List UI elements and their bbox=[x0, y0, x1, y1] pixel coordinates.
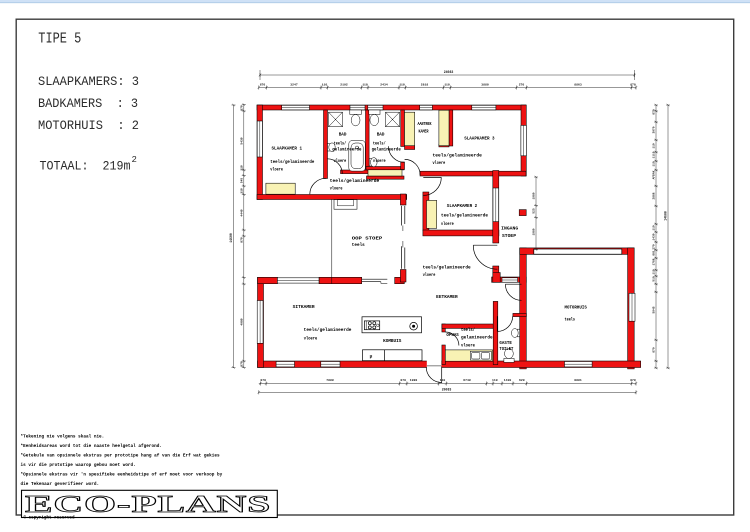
svg-text:SLAAPKAMERS: 3: SLAAPKAMERS: 3 bbox=[38, 74, 139, 89]
svg-text:110: 110 bbox=[440, 378, 446, 382]
svg-text:3247: 3247 bbox=[290, 83, 298, 87]
svg-text:teels/gelamineerde: teels/gelamineerde bbox=[433, 154, 483, 159]
svg-text:870: 870 bbox=[653, 109, 656, 114]
svg-text:110: 110 bbox=[399, 83, 405, 87]
svg-text:gelamineerde: gelamineerde bbox=[332, 148, 362, 153]
svg-text:110: 110 bbox=[492, 378, 498, 382]
svg-text:vloere: vloere bbox=[304, 336, 318, 341]
svg-text:14600: 14600 bbox=[664, 211, 668, 221]
svg-text:1988: 1988 bbox=[410, 378, 418, 382]
svg-text:teels/gelamineerde: teels/gelamineerde bbox=[441, 214, 489, 219]
svg-text:teels/: teels/ bbox=[461, 328, 475, 333]
svg-text:vloere: vloere bbox=[334, 159, 347, 164]
svg-text:*Getekule van opsionele ekstra: *Getekule van opsionele ekstras per prot… bbox=[21, 452, 220, 458]
svg-text:870: 870 bbox=[260, 378, 266, 382]
svg-text:MOTORHUIS : 2: MOTORHUIS : 2 bbox=[38, 118, 139, 133]
svg-text:3880: 3880 bbox=[481, 83, 489, 87]
svg-text:TOTAAL: 219m: TOTAAL: 219m bbox=[40, 159, 131, 174]
svg-text:vloere: vloere bbox=[441, 222, 454, 227]
svg-text:die Tekenaar geverifieer word.: die Tekenaar geverifieer word. bbox=[21, 481, 100, 487]
svg-text:110: 110 bbox=[362, 83, 368, 87]
svg-text:7888: 7888 bbox=[326, 378, 334, 382]
svg-text:*Eenheidsareas word tot die na: *Eenheidsareas word tot die naaste heelg… bbox=[21, 443, 163, 449]
svg-text:1980: 1980 bbox=[533, 228, 536, 235]
svg-text:110: 110 bbox=[653, 161, 656, 166]
svg-text:gelamineerde: gelamineerde bbox=[372, 148, 402, 153]
svg-text:5430: 5430 bbox=[240, 137, 243, 144]
svg-text:3070: 3070 bbox=[653, 126, 656, 133]
svg-text:© copyright reserved: © copyright reserved bbox=[24, 516, 75, 521]
svg-text:BADKAMERS : 3: BADKAMERS : 3 bbox=[38, 96, 138, 111]
svg-text:4980: 4980 bbox=[240, 318, 243, 325]
svg-text:870: 870 bbox=[240, 361, 243, 367]
svg-text:SITKAMER: SITKAMER bbox=[293, 305, 315, 310]
svg-text:BAD: BAD bbox=[339, 133, 347, 138]
svg-text:INGANG: INGANG bbox=[501, 227, 518, 232]
svg-text:teels: teels bbox=[565, 317, 576, 322]
svg-text:gelamineerde: gelamineerde bbox=[461, 336, 493, 341]
svg-text:545: 545 bbox=[240, 178, 243, 184]
svg-text:2: 2 bbox=[132, 155, 137, 165]
svg-text:vloere: vloere bbox=[423, 273, 436, 278]
svg-text:vloere: vloere bbox=[330, 187, 343, 192]
svg-text:270: 270 bbox=[653, 244, 656, 249]
svg-text:6748: 6748 bbox=[463, 378, 471, 382]
svg-text:870: 870 bbox=[630, 83, 636, 87]
svg-text:ECO-PLANS: ECO-PLANS bbox=[25, 491, 271, 518]
svg-text:BAD: BAD bbox=[377, 133, 385, 138]
svg-text:is vir die prototipe waarop ge: is vir die prototipe waarop gebou moet w… bbox=[21, 462, 136, 468]
svg-text:SLAAPKAMER 3: SLAAPKAMER 3 bbox=[464, 137, 495, 142]
svg-text:vloere: vloere bbox=[461, 343, 475, 348]
svg-text:2818: 2818 bbox=[421, 83, 429, 87]
svg-text:110: 110 bbox=[444, 83, 450, 87]
svg-text:vloere: vloere bbox=[433, 161, 446, 166]
svg-text:26083: 26083 bbox=[442, 388, 452, 392]
svg-text:5945: 5945 bbox=[653, 306, 656, 313]
svg-text:EETKAMER: EETKAMER bbox=[436, 295, 458, 300]
svg-text:*Opsionele ekstras vir 'n spes: *Opsionele ekstras vir 'n spesifieke een… bbox=[21, 472, 223, 478]
svg-text:teels/gelamineerde: teels/gelamineerde bbox=[304, 328, 352, 333]
svg-text:AANTREK: AANTREK bbox=[418, 122, 432, 127]
svg-text:STOEP: STOEP bbox=[502, 234, 516, 239]
svg-text:KAMER: KAMER bbox=[419, 130, 429, 135]
svg-text:2888: 2888 bbox=[653, 192, 656, 199]
svg-text:teels/: teels/ bbox=[373, 141, 386, 146]
svg-text:OOP STOEP: OOP STOEP bbox=[352, 236, 383, 242]
svg-text:870: 870 bbox=[400, 378, 406, 382]
svg-text:GASTE: GASTE bbox=[499, 341, 512, 346]
svg-text:4440: 4440 bbox=[240, 209, 243, 216]
svg-text:24083: 24083 bbox=[444, 70, 454, 74]
svg-text:OPWAS: OPWAS bbox=[446, 333, 459, 338]
svg-text:881: 881 bbox=[653, 250, 656, 255]
svg-text:1788: 1788 bbox=[653, 258, 656, 265]
svg-text:teels/gelamineerde: teels/gelamineerde bbox=[423, 266, 472, 271]
svg-text:110: 110 bbox=[322, 83, 328, 87]
svg-text:14600: 14600 bbox=[229, 233, 233, 243]
svg-text:870: 870 bbox=[260, 83, 266, 87]
svg-text:870: 870 bbox=[653, 347, 656, 352]
svg-text:SLAAPKAMER 1: SLAAPKAMER 1 bbox=[272, 147, 303, 152]
svg-text:*Tekening nie volgens skaal ni: *Tekening nie volgens skaal nie. bbox=[21, 433, 105, 439]
svg-text:870: 870 bbox=[630, 378, 636, 382]
svg-text:270: 270 bbox=[519, 83, 525, 87]
svg-text:8881: 8881 bbox=[574, 378, 582, 382]
svg-text:vloere: vloere bbox=[373, 159, 386, 164]
svg-text:525: 525 bbox=[533, 208, 536, 213]
svg-text:510: 510 bbox=[653, 276, 656, 281]
svg-text:110: 110 bbox=[653, 143, 656, 148]
svg-text:SLAAPKAMER 2: SLAAPKAMER 2 bbox=[447, 204, 478, 209]
svg-text:2192: 2192 bbox=[340, 83, 348, 87]
svg-text:TOILET: TOILET bbox=[499, 347, 513, 352]
svg-text:TIPE 5: TIPE 5 bbox=[38, 31, 81, 47]
svg-text:8863: 8863 bbox=[574, 83, 582, 87]
svg-text:teels/gelamineerde: teels/gelamineerde bbox=[330, 179, 380, 184]
svg-text:620: 620 bbox=[519, 378, 525, 382]
svg-text:1110: 1110 bbox=[653, 151, 656, 158]
svg-text:870: 870 bbox=[240, 237, 243, 243]
svg-text:teels/gelamineerde: teels/gelamineerde bbox=[270, 160, 314, 165]
svg-text:110: 110 bbox=[240, 165, 243, 171]
svg-text:MOTORHUIS: MOTORHUIS bbox=[565, 305, 588, 310]
svg-text:870: 870 bbox=[240, 105, 243, 111]
svg-text:AFDAK: AFDAK bbox=[653, 170, 656, 179]
svg-text:vloere: vloere bbox=[270, 168, 283, 173]
svg-text:µ: µ bbox=[370, 355, 373, 360]
svg-text:1430: 1430 bbox=[504, 378, 512, 382]
svg-text:teels/: teels/ bbox=[334, 141, 347, 146]
svg-text:1430: 1430 bbox=[653, 233, 656, 240]
svg-text:teels: teels bbox=[352, 243, 365, 248]
svg-text:110: 110 bbox=[653, 225, 656, 230]
svg-text:KOMBUIS: KOMBUIS bbox=[383, 339, 402, 344]
svg-text:110: 110 bbox=[653, 269, 656, 274]
svg-text:1980: 1980 bbox=[533, 192, 536, 199]
svg-text:2434: 2434 bbox=[380, 83, 388, 87]
svg-text:110: 110 bbox=[240, 188, 243, 194]
